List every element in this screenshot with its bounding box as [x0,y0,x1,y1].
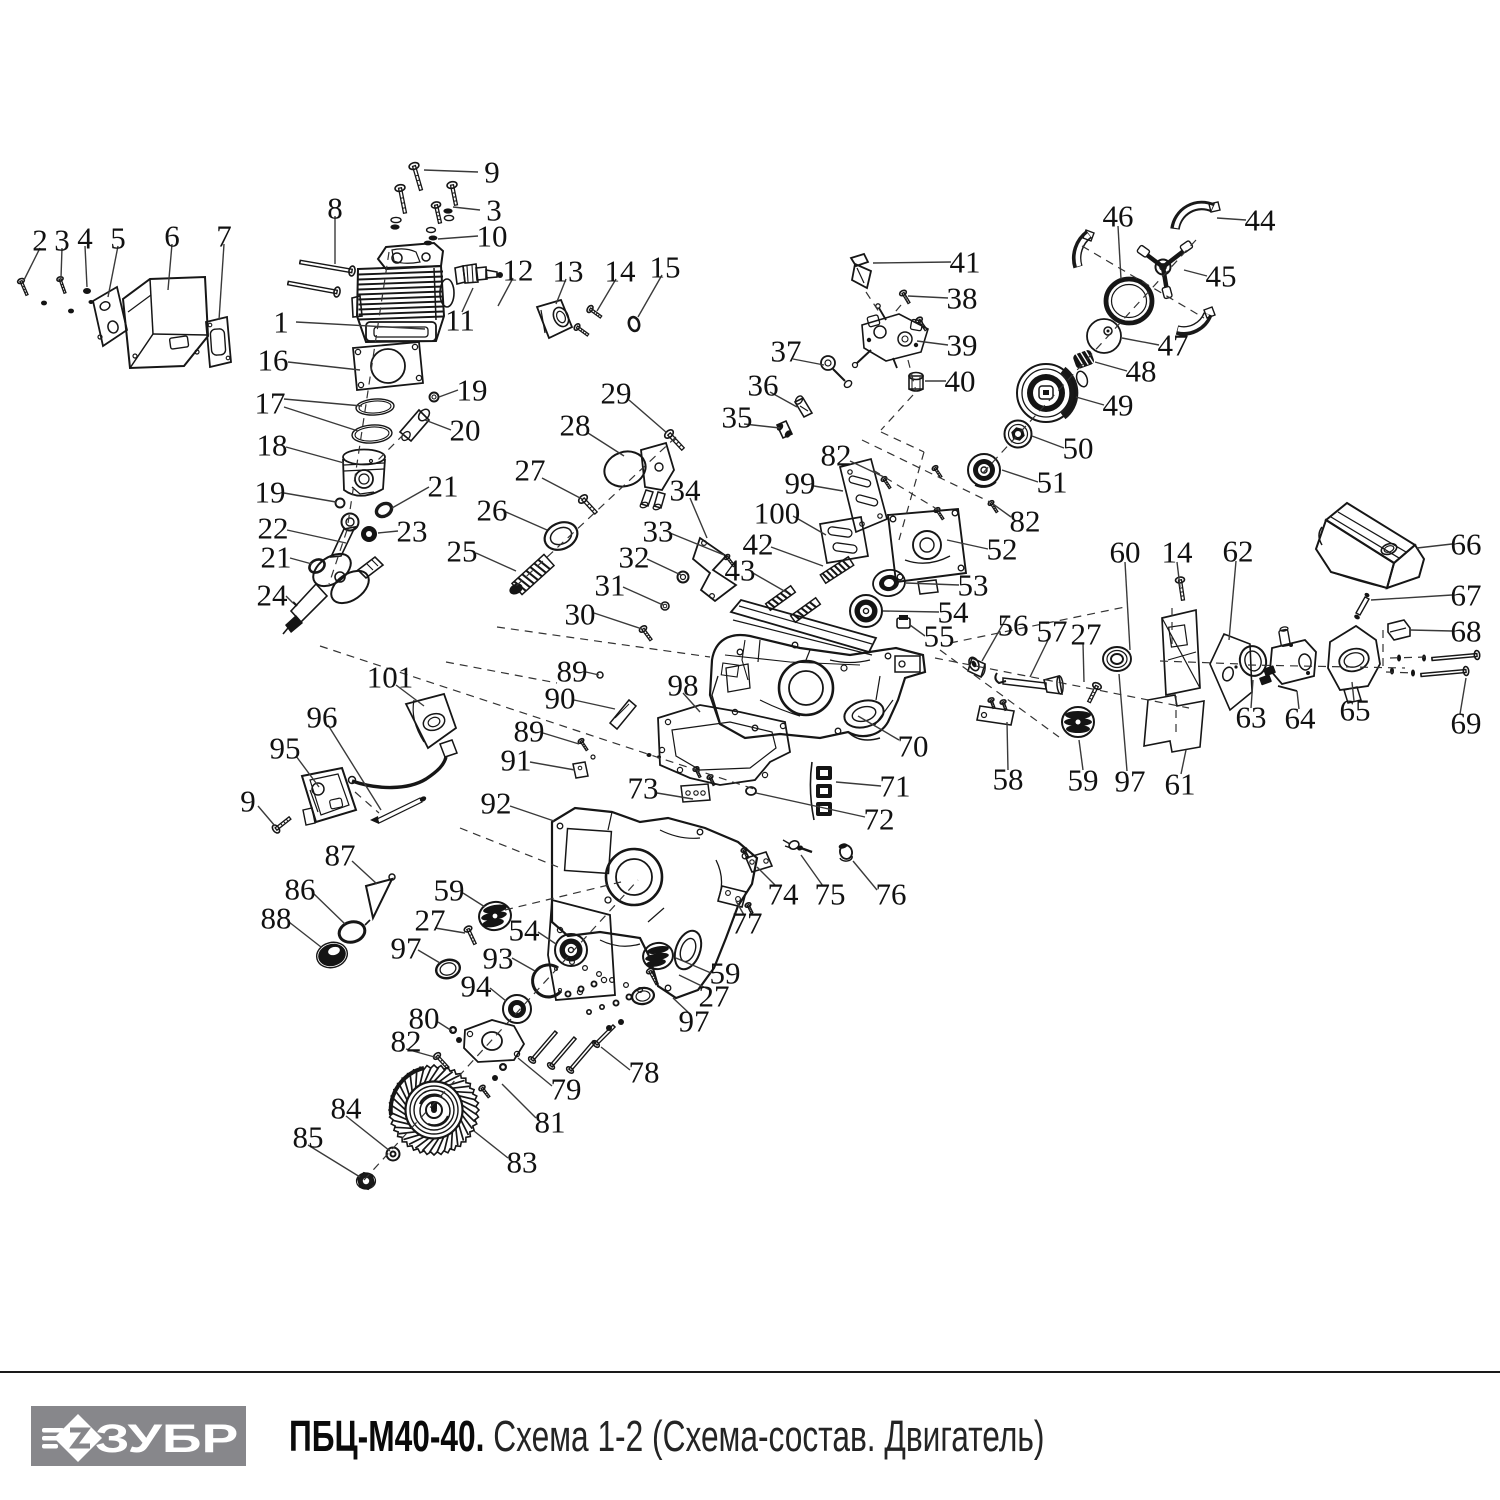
svg-text:71: 71 [880,769,911,804]
svg-text:49: 49 [1103,388,1134,423]
svg-text:59: 59 [1068,763,1099,798]
svg-text:7: 7 [216,219,232,254]
svg-text:98: 98 [668,668,699,703]
svg-text:14: 14 [1162,535,1194,570]
svg-text:48: 48 [1126,354,1157,389]
svg-text:96: 96 [307,700,338,735]
svg-text:52: 52 [987,532,1018,567]
svg-text:11: 11 [445,303,475,338]
svg-text:57: 57 [1037,614,1068,649]
svg-text:14: 14 [605,254,637,289]
svg-text:46: 46 [1103,199,1134,234]
svg-text:81: 81 [535,1105,566,1140]
svg-text:21: 21 [261,540,292,575]
svg-text:64: 64 [1285,701,1317,736]
svg-text:36: 36 [748,368,779,403]
svg-text:76: 76 [876,877,907,912]
svg-text:94: 94 [461,969,493,1004]
svg-text:97: 97 [1115,764,1146,799]
svg-text:21: 21 [428,469,459,504]
svg-text:24: 24 [257,578,289,613]
svg-text:28: 28 [560,408,591,443]
svg-text:9: 9 [484,155,500,190]
svg-text:51: 51 [1037,465,1068,500]
svg-text:30: 30 [565,597,596,632]
svg-text:27: 27 [515,453,546,488]
svg-text:5: 5 [110,221,126,256]
svg-text:101: 101 [367,660,414,695]
svg-text:9: 9 [240,784,256,819]
svg-text:55: 55 [924,619,955,654]
svg-text:27: 27 [1071,617,1102,652]
svg-text:1: 1 [273,305,289,340]
svg-text:90: 90 [545,681,576,716]
svg-text:41: 41 [950,245,981,280]
svg-text:19: 19 [457,373,488,408]
svg-text:60: 60 [1110,535,1141,570]
svg-text:85: 85 [293,1120,324,1155]
svg-text:67: 67 [1451,578,1482,613]
svg-text:75: 75 [815,877,846,912]
svg-text:62: 62 [1223,534,1254,569]
svg-text:59: 59 [710,956,741,991]
svg-text:17: 17 [255,386,286,421]
svg-text:35: 35 [722,400,753,435]
svg-text:72: 72 [864,802,895,837]
svg-text:82: 82 [391,1024,422,1059]
svg-text:77: 77 [732,906,763,941]
svg-text:23: 23 [397,514,428,549]
svg-text:16: 16 [258,343,289,378]
svg-text:26: 26 [477,493,508,528]
svg-text:10: 10 [477,219,508,254]
svg-text:82: 82 [821,438,852,473]
svg-text:45: 45 [1206,259,1237,294]
svg-text:63: 63 [1236,700,1267,735]
svg-text:6: 6 [164,219,180,254]
svg-text:34: 34 [670,473,702,508]
svg-text:38: 38 [947,281,978,316]
svg-text:27: 27 [415,903,446,938]
svg-text:40: 40 [945,364,976,399]
svg-text:37: 37 [771,334,802,369]
svg-text:100: 100 [754,496,801,531]
svg-text:79: 79 [551,1072,582,1107]
svg-text:54: 54 [509,913,541,948]
svg-text:44: 44 [1245,203,1277,238]
svg-text:70: 70 [898,729,929,764]
svg-text:13: 13 [553,254,584,289]
svg-text:18: 18 [257,428,288,463]
svg-text:84: 84 [331,1091,363,1126]
svg-text:25: 25 [447,534,478,569]
svg-text:66: 66 [1451,527,1482,562]
svg-text:3: 3 [54,223,70,258]
svg-text:74: 74 [768,877,800,912]
svg-text:91: 91 [501,743,532,778]
svg-text:59: 59 [434,873,465,908]
svg-text:61: 61 [1165,767,1196,802]
svg-text:88: 88 [261,901,292,936]
svg-text:2: 2 [32,223,48,258]
svg-text:73: 73 [628,771,659,806]
svg-text:50: 50 [1063,431,1094,466]
svg-text:87: 87 [325,838,356,873]
svg-text:4: 4 [77,221,93,256]
svg-text:20: 20 [450,413,481,448]
svg-text:58: 58 [993,762,1024,797]
svg-text:78: 78 [629,1055,660,1090]
svg-text:29: 29 [601,376,632,411]
svg-text:56: 56 [998,608,1029,643]
svg-text:39: 39 [947,328,978,363]
svg-text:8: 8 [327,191,343,226]
svg-text:83: 83 [507,1145,538,1180]
svg-text:69: 69 [1451,706,1482,741]
svg-text:43: 43 [725,553,756,588]
svg-text:95: 95 [270,731,301,766]
svg-text:12: 12 [503,253,534,288]
svg-text:33: 33 [643,514,674,549]
svg-text:68: 68 [1451,614,1482,649]
svg-text:15: 15 [650,250,681,285]
svg-text:47: 47 [1158,328,1189,363]
svg-text:65: 65 [1340,693,1371,728]
svg-text:19: 19 [255,475,286,510]
svg-text:92: 92 [481,786,512,821]
